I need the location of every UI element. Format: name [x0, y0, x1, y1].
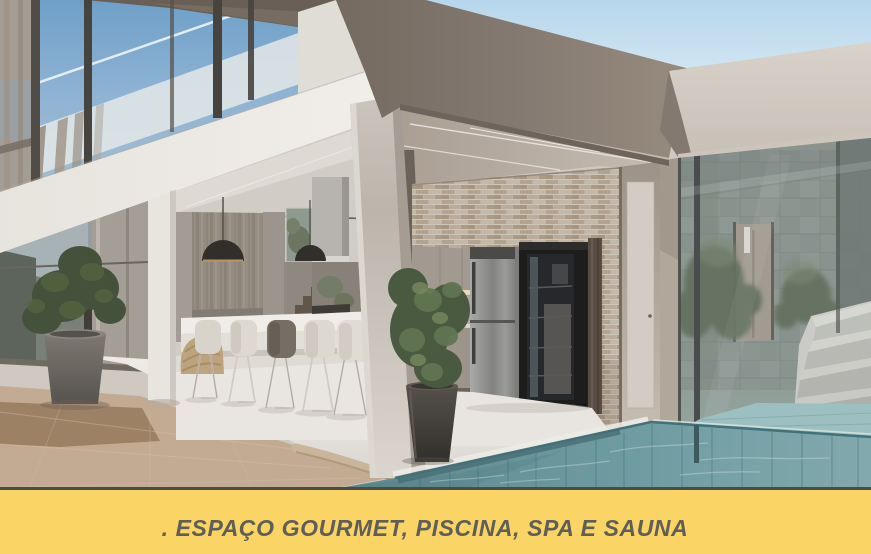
- svg-text:. ESPAÇO GOURMET, PISCINA, SPA: . ESPAÇO GOURMET, PISCINA, SPA E SAUNA: [162, 515, 689, 541]
